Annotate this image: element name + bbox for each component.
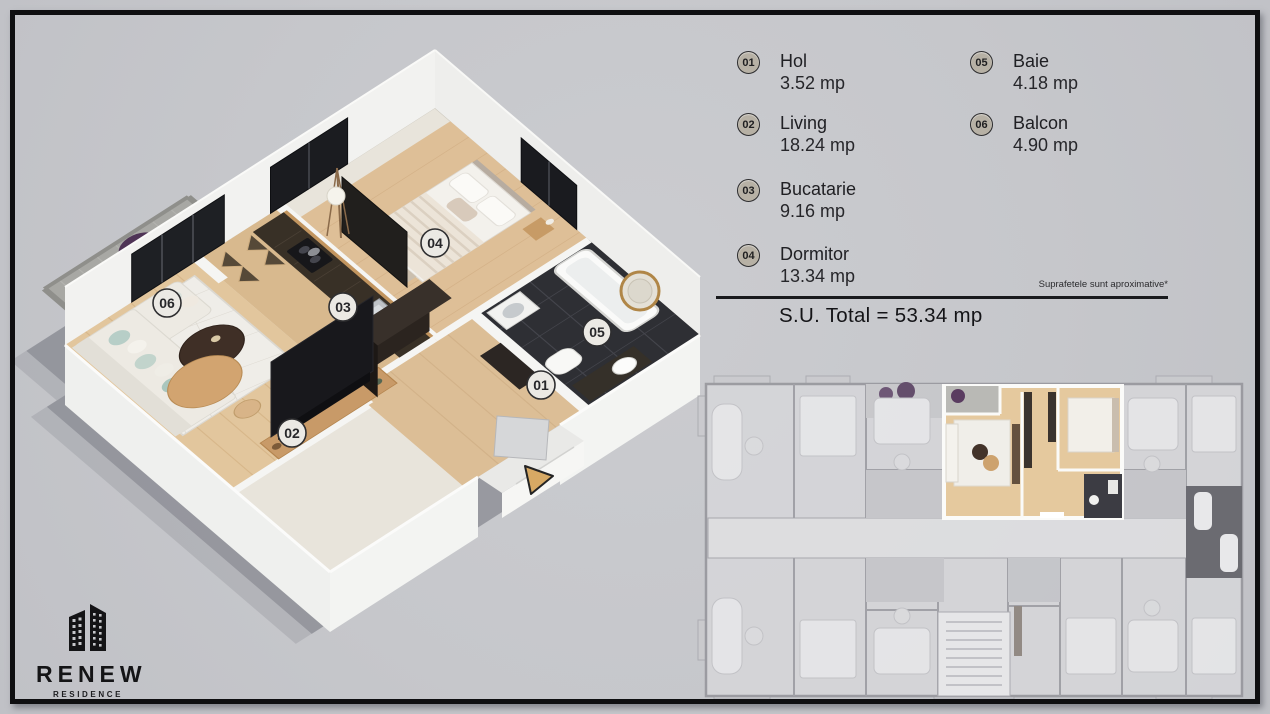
right-core bbox=[1186, 486, 1242, 578]
legend-item-balcon: 06 Balcon 4.90 mp bbox=[970, 112, 1078, 156]
apartment-3d-plan: 01 02 03 04 05 bbox=[0, 50, 700, 644]
unit-bed bbox=[1068, 398, 1114, 452]
svg-text:06: 06 bbox=[159, 295, 175, 311]
room-name: Dormitor bbox=[780, 243, 855, 265]
room-area: 3.52 mp bbox=[780, 72, 845, 94]
unit-tv-console bbox=[1012, 424, 1020, 484]
room-area: 9.16 mp bbox=[780, 200, 856, 222]
svg-text:01: 01 bbox=[533, 377, 549, 393]
legend-item-bucatarie: 03 Bucatarie 9.16 mp bbox=[737, 178, 856, 222]
legend-item-baie: 05 Baie 4.18 mp bbox=[970, 50, 1078, 94]
brand-logo: RENEW RESIDENCE bbox=[36, 601, 140, 699]
building-overview-plan bbox=[698, 376, 1242, 699]
unit-sofa bbox=[946, 424, 958, 482]
svg-text:05: 05 bbox=[589, 324, 605, 340]
room-name: Living bbox=[780, 112, 855, 134]
unit-kitchen-counter bbox=[1024, 392, 1032, 468]
brand-subtitle: RESIDENCE bbox=[36, 690, 140, 699]
unit-entry bbox=[1040, 512, 1064, 518]
room-badge-06: 06 bbox=[153, 289, 181, 317]
floorplan-poster: 01 02 03 04 05 bbox=[0, 0, 1270, 714]
legend-badge: 05 bbox=[970, 51, 993, 74]
room-badge-01: 01 bbox=[527, 371, 555, 399]
legend-item-living: 02 Living 18.24 mp bbox=[737, 112, 855, 156]
brand-name: RENEW bbox=[36, 661, 140, 688]
room-name: Balcon bbox=[1013, 112, 1078, 134]
buildings-icon bbox=[65, 601, 111, 653]
room-name: Bucatarie bbox=[780, 178, 856, 200]
legend-badge: 06 bbox=[970, 113, 993, 136]
room-area: 4.18 mp bbox=[1013, 72, 1078, 94]
highlighted-unit bbox=[944, 386, 1122, 518]
svg-text:04: 04 bbox=[427, 235, 443, 251]
stairs bbox=[938, 612, 1010, 696]
total-area-text: S.U. Total = 53.34 mp bbox=[779, 304, 983, 328]
mirror-icon bbox=[621, 272, 659, 310]
legend-badge: 01 bbox=[737, 51, 760, 74]
legend-badge: 03 bbox=[737, 179, 760, 202]
legend-item-hol: 01 Hol 3.52 mp bbox=[737, 50, 845, 94]
entrance-door-leaf bbox=[494, 416, 549, 460]
svg-text:03: 03 bbox=[335, 299, 351, 315]
room-area: 4.90 mp bbox=[1013, 134, 1078, 156]
room-area: 18.24 mp bbox=[780, 134, 855, 156]
room-name: Baie bbox=[1013, 50, 1078, 72]
room-badge-05: 05 bbox=[583, 318, 611, 346]
legend-badge: 04 bbox=[737, 244, 760, 267]
svg-text:02: 02 bbox=[284, 425, 300, 441]
room-badge-04: 04 bbox=[421, 229, 449, 257]
disclaimer-text: Suprafetele sunt aproximative* bbox=[715, 279, 1168, 290]
room-badge-03: 03 bbox=[329, 293, 357, 321]
legend-badge: 02 bbox=[737, 113, 760, 136]
room-name: Hol bbox=[780, 50, 845, 72]
legend-divider bbox=[716, 296, 1168, 299]
plans-artwork: 01 02 03 04 05 bbox=[0, 0, 1270, 714]
room-badge-02: 02 bbox=[278, 419, 306, 447]
